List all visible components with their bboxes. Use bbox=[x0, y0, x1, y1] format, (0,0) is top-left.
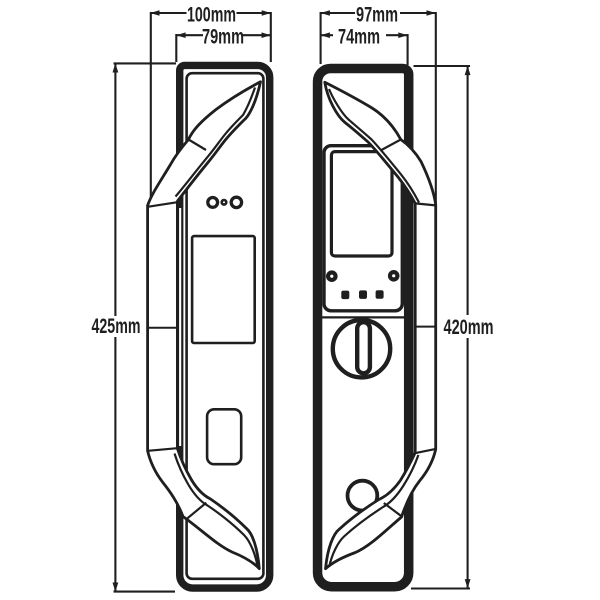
svg-text:74mm: 74mm bbox=[338, 26, 380, 49]
svg-text:79mm: 79mm bbox=[202, 26, 244, 49]
svg-text:420mm: 420mm bbox=[444, 315, 494, 339]
svg-text:97mm: 97mm bbox=[356, 4, 398, 27]
svg-text:425mm: 425mm bbox=[92, 315, 141, 338]
svg-text:100mm: 100mm bbox=[187, 4, 236, 27]
